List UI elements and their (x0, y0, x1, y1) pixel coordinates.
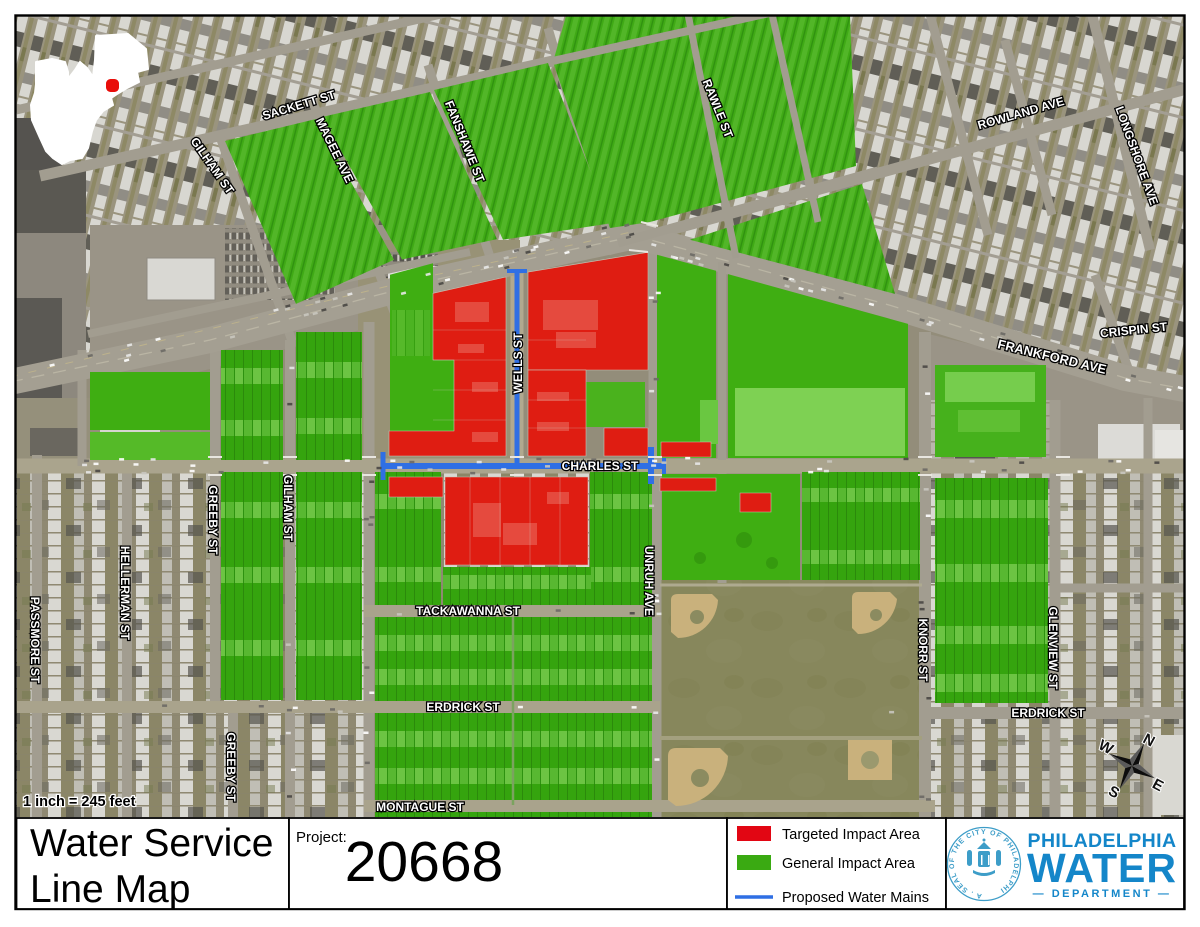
svg-text:MONTAGUE ST: MONTAGUE ST (376, 800, 464, 814)
svg-text:WELLS ST: WELLS ST (511, 332, 525, 393)
svg-text:TACKAWANNA ST: TACKAWANNA ST (416, 604, 521, 618)
svg-text:Project:: Project: (296, 829, 347, 846)
svg-text:UNRUH AVE: UNRUH AVE (642, 546, 656, 616)
svg-text:1 inch = 245 feet: 1 inch = 245 feet (23, 794, 136, 810)
svg-text:Line Map: Line Map (30, 868, 190, 911)
svg-text:GLENVIEW ST: GLENVIEW ST (1046, 607, 1060, 690)
svg-text:CHARLES ST: CHARLES ST (562, 459, 639, 473)
svg-text:ERDRICK ST: ERDRICK ST (1011, 706, 1085, 720)
svg-text:Water Service: Water Service (30, 822, 273, 865)
svg-text:20668: 20668 (345, 830, 504, 894)
svg-text:Proposed Water Mains: Proposed Water Mains (782, 890, 929, 906)
svg-text:GILHAM ST: GILHAM ST (281, 475, 295, 542)
svg-text:General Impact Area: General Impact Area (782, 856, 916, 872)
svg-text:— DEPARTMENT —: — DEPARTMENT — (1033, 888, 1172, 900)
svg-text:HELLERMAN ST: HELLERMAN ST (118, 546, 132, 641)
svg-text:WATER: WATER (1027, 845, 1177, 891)
svg-text:KNORR ST: KNORR ST (916, 619, 930, 682)
svg-text:PASSMORE ST: PASSMORE ST (28, 597, 42, 684)
svg-text:GREEBY ST: GREEBY ST (206, 485, 220, 555)
svg-text:Targeted Impact Area: Targeted Impact Area (782, 827, 921, 843)
svg-text:ERDRICK ST: ERDRICK ST (426, 700, 500, 714)
svg-text:GREEBY ST: GREEBY ST (224, 732, 238, 802)
